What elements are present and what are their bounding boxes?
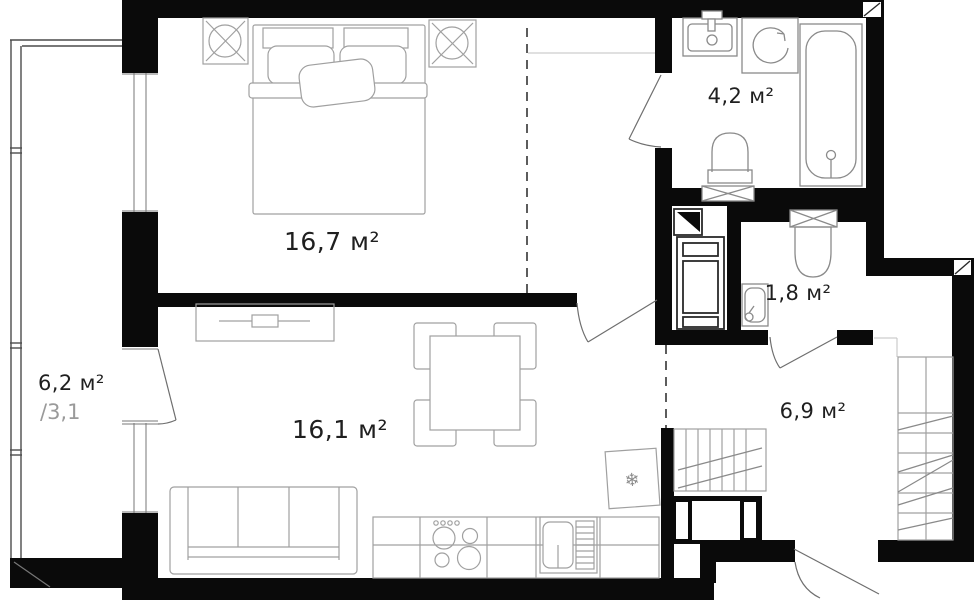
coat-rack — [674, 429, 766, 491]
washing-machine-icon — [742, 18, 798, 73]
dining-table — [430, 336, 520, 430]
decorative-pillow — [298, 58, 377, 109]
wardrobe — [898, 357, 953, 540]
headboard-panel — [263, 28, 333, 48]
door-swing-arc — [770, 337, 780, 368]
bathtub — [800, 24, 862, 186]
door-swing-arc — [629, 139, 661, 147]
toilet — [708, 133, 752, 183]
wc-toilet — [790, 210, 837, 277]
floor-plan-drawing: ❄ — [0, 0, 974, 600]
fridge: ❄ — [605, 448, 660, 508]
hallway-area-label: 6,9 м² — [780, 399, 847, 423]
door-swing-arc — [795, 562, 820, 598]
tv-console — [196, 304, 334, 341]
bedroom-window — [122, 73, 158, 212]
glazing-mullions — [10, 148, 22, 455]
sink-drainer — [576, 521, 594, 569]
living-area-label: 16,1 м² — [292, 415, 388, 444]
hall-cabinet — [670, 496, 762, 544]
bathroom-sink — [683, 11, 737, 56]
door-swing-arc — [577, 303, 588, 342]
faucet-icon — [745, 313, 753, 321]
balcony-secondary-label: /3,1 — [40, 400, 80, 424]
bedroom-area-label: 16,7 м² — [284, 227, 380, 256]
bathroom-area-label: 4,2 м² — [708, 84, 775, 108]
bathroom-door — [629, 75, 661, 147]
faucet-icon — [702, 11, 722, 19]
bed — [249, 25, 427, 214]
kitchen-counter — [373, 517, 659, 578]
sofa — [170, 487, 357, 574]
faucet-icon — [708, 19, 715, 31]
balcony-door — [122, 347, 176, 424]
fridge-snowflake-icon: ❄ — [624, 469, 641, 491]
living-window — [122, 423, 158, 513]
door-swing-arc — [158, 420, 176, 424]
utility-cabinet — [677, 237, 724, 329]
nightstand-lamp-icon — [203, 18, 248, 64]
nightstand-lamp-icon — [429, 20, 476, 67]
tv-icon — [252, 315, 278, 327]
wc-area-label: 1,8 м² — [765, 281, 832, 305]
dining-set — [414, 323, 536, 446]
floor-plan: ❄ — [0, 0, 974, 600]
towel-rail-icon — [702, 186, 754, 201]
corner-chamfer-mark — [863, 2, 881, 17]
entrance-door — [794, 549, 879, 598]
balcony-glazing — [10, 40, 122, 558]
headboard-panel — [344, 28, 408, 48]
wc-door — [770, 337, 837, 368]
vent-shaft-icon — [674, 209, 702, 235]
balcony-area-label: 6,2 м² — [38, 371, 105, 395]
kitchen-sink — [540, 517, 597, 573]
corner-chamfer-mark — [954, 260, 971, 275]
bedroom-door — [577, 300, 657, 342]
